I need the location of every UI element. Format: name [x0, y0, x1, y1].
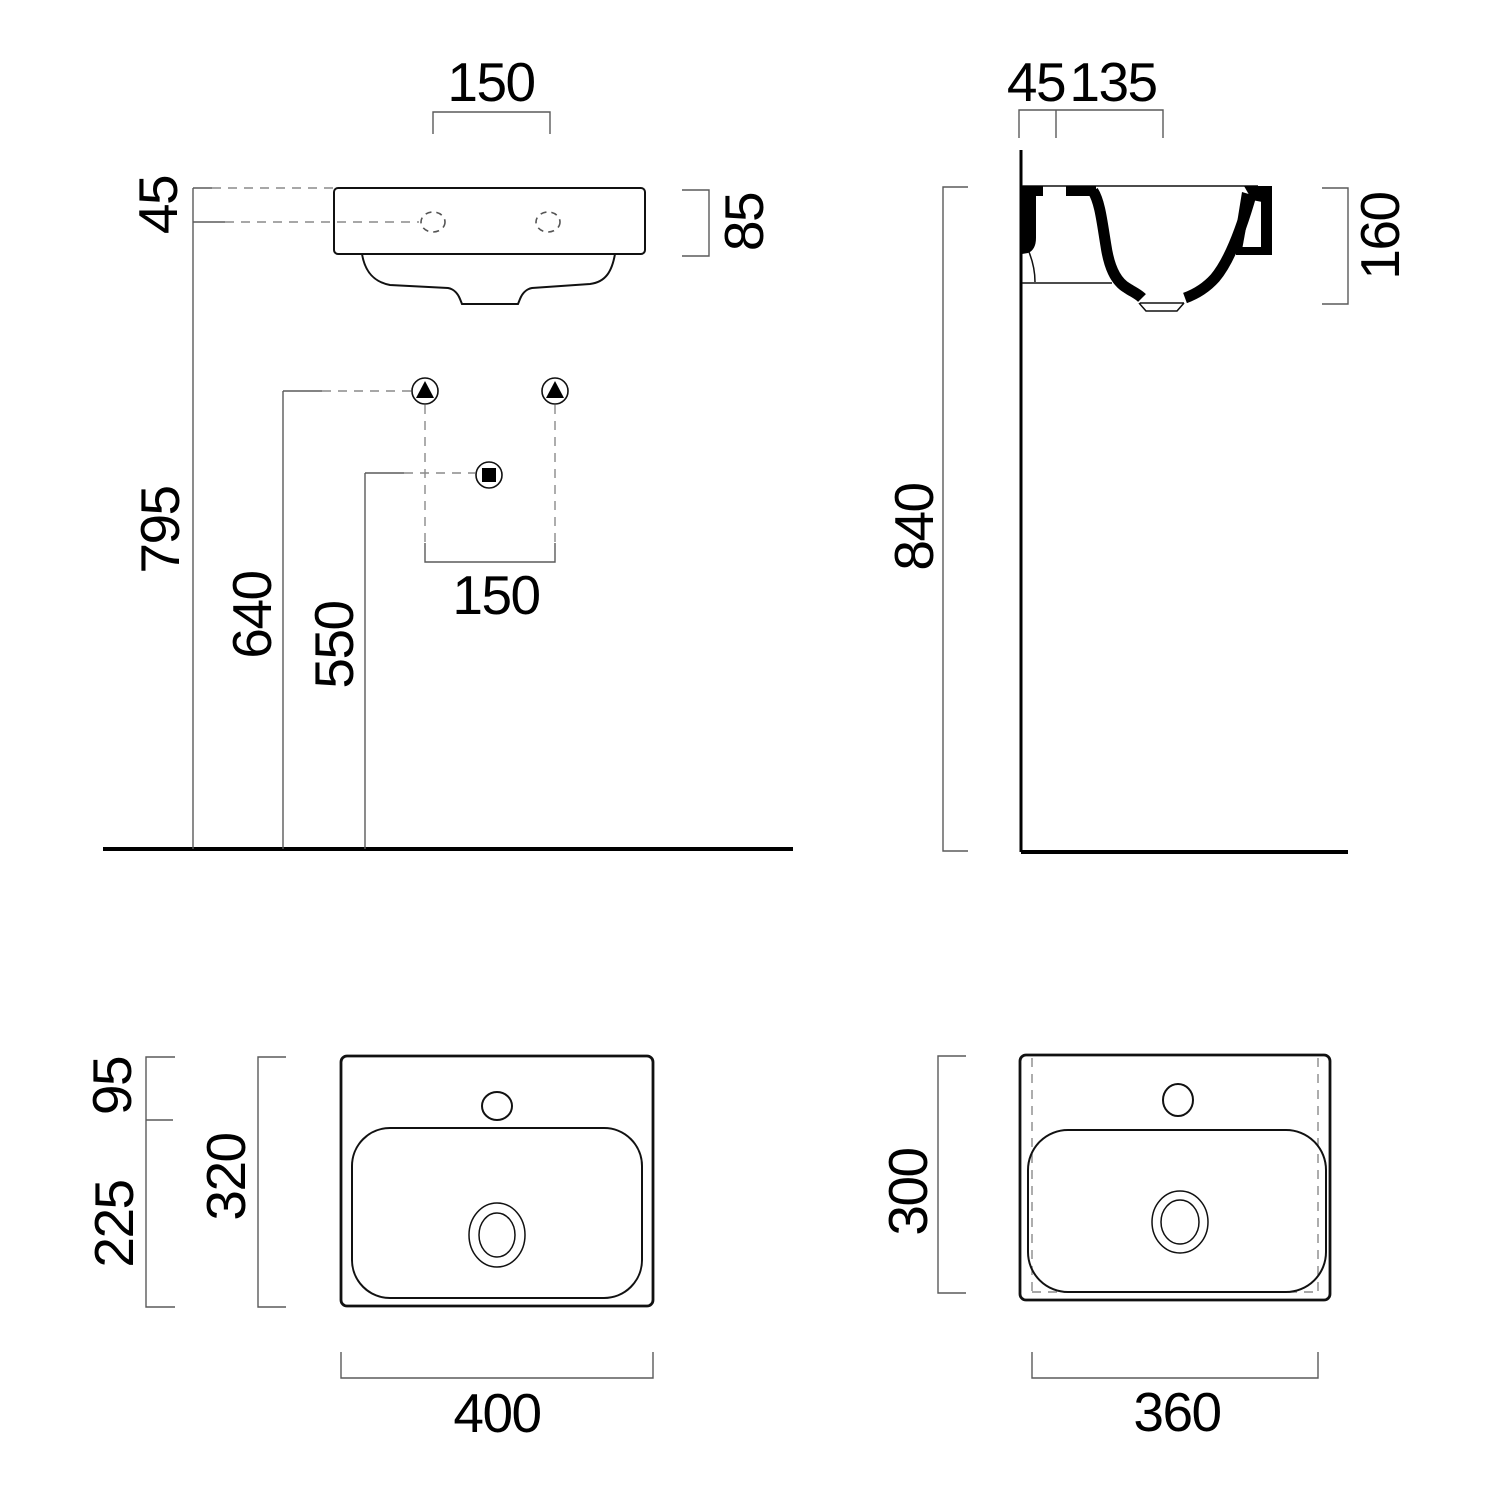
dim-bracket-wall-tap-waste: [1019, 110, 1163, 138]
supply-symbol-left: [412, 378, 438, 404]
section-wall-taper: [1029, 252, 1035, 282]
dim-label-wall-to-tap: 45: [1007, 51, 1065, 113]
dim-label-overall-depth: 320: [195, 1133, 257, 1220]
plan-tap-hole: [482, 1092, 512, 1120]
technical-drawing-page: 150 45 85 795 640 550: [0, 0, 1500, 1500]
dim-bracket-basin-depth: [1322, 188, 1348, 304]
tap-hole-right: [536, 212, 560, 232]
dim-bracket-supply-spacing: [425, 543, 555, 562]
bottom-drain-inner: [1161, 1200, 1199, 1244]
plan-outer-outline: [341, 1056, 653, 1306]
basin-cross-section: [1022, 186, 1272, 311]
dim-bracket-overall-depth: [258, 1057, 286, 1307]
dim-label-rim-height: 795: [129, 486, 191, 573]
dim-label-rim-to-tap: 45: [127, 176, 189, 234]
dim-bracket-bottom-width: [1032, 1352, 1318, 1378]
dim-label-supply-spacing: 150: [452, 564, 539, 626]
dim-label-bottom-width: 360: [1133, 1381, 1220, 1443]
dim-label-deck-depth: 95: [81, 1057, 143, 1115]
dim-label-waste-height: 550: [303, 601, 365, 688]
bottom-tap-hole: [1163, 1084, 1193, 1116]
dim-label-bottom-depth: 300: [877, 1148, 939, 1235]
section-wall-bar: [1022, 186, 1036, 254]
waste-symbol: [476, 462, 502, 488]
plan-drain-inner: [479, 1213, 515, 1257]
tap-hole-left: [421, 212, 445, 232]
supply-symbol-right: [542, 378, 568, 404]
section-outer-right-bar: [1261, 186, 1272, 255]
drain-fitting-outline: [1139, 303, 1184, 311]
section-outer-diagonal: [1233, 192, 1252, 250]
dim-bracket-bottom-depth: [938, 1056, 966, 1293]
section-bowl-left-wall: [1093, 191, 1142, 298]
bottom-bowl-outline: [1028, 1130, 1326, 1292]
basin-front-outline: [334, 188, 645, 254]
dim-label-side-rim-height: 840: [883, 483, 945, 570]
dim-bracket-deck-bowl-depth: [146, 1057, 175, 1307]
plan-top-view: 95 225 320 400: [81, 1056, 653, 1444]
dim-label-tap-spacing: 150: [447, 51, 534, 113]
dim-label-supply-height: 640: [221, 571, 283, 658]
dim-bracket-side-rim-height: [943, 187, 968, 851]
plan-bottom-view: 300 360: [877, 1055, 1330, 1443]
dim-label-basin-depth: 160: [1349, 192, 1411, 279]
dim-label-bowl-depth: 225: [83, 1180, 145, 1267]
dim-bracket-overall-width: [341, 1352, 653, 1378]
dim-bracket-tap-spacing: [433, 112, 550, 134]
washbasin-dimension-drawing: 150 45 85 795 640 550: [0, 0, 1500, 1500]
dim-bracket-apron: [682, 190, 709, 256]
basin-bowl-outline: [362, 254, 615, 304]
dim-label-apron-height: 85: [713, 193, 775, 251]
dim-label-overall-width: 400: [453, 1382, 540, 1444]
bottom-outer-outline: [1020, 1055, 1330, 1300]
front-view: 150 45 85 795 640 550: [103, 51, 793, 849]
side-view: 45 135 160 840: [883, 51, 1411, 852]
dim-label-tap-to-waste: 135: [1069, 51, 1156, 113]
